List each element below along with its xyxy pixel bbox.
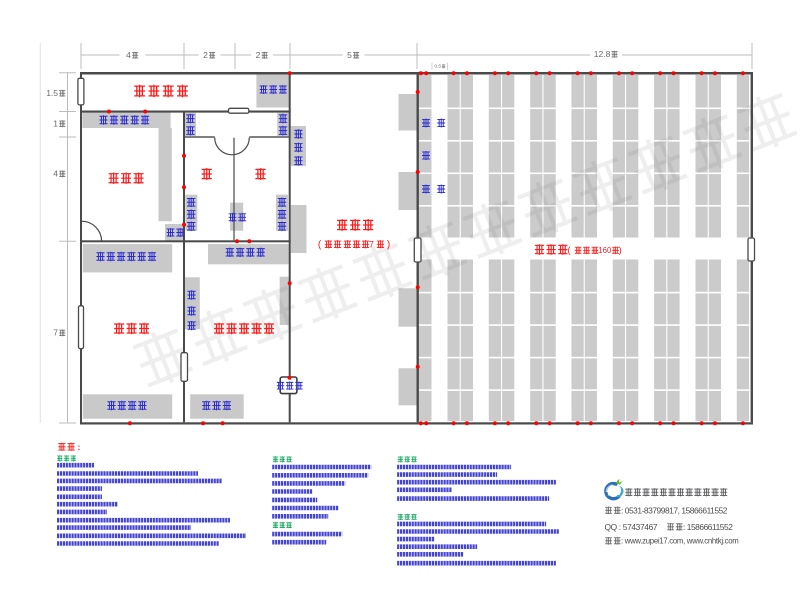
svg-text:12.8: 12.8 (594, 49, 611, 59)
svg-text:0.5: 0.5 (434, 64, 441, 70)
svg-text:): ) (387, 240, 390, 251)
svg-text:7: 7 (369, 240, 374, 250)
svg-text:160: 160 (598, 246, 612, 255)
svg-text:7: 7 (53, 328, 58, 338)
svg-text:(: ( (567, 245, 570, 255)
svg-text:): ) (619, 245, 622, 255)
svg-text::: : (78, 442, 81, 452)
svg-text:4: 4 (126, 50, 131, 60)
svg-text:4: 4 (53, 169, 58, 179)
svg-text:1.5: 1.5 (46, 88, 58, 98)
svg-text:: www.zupei17.com, www.cnhtkj: : www.zupei17.com, www.cnhtkj.com (621, 537, 739, 546)
svg-text:1: 1 (53, 119, 58, 129)
svg-text:TH: TH (607, 492, 615, 498)
svg-text:QQ : 57437467: QQ : 57437467 (605, 522, 658, 532)
svg-text:: 0531-83799817, 15866611552: : 0531-83799817, 15866611552 (621, 505, 728, 515)
svg-text:5: 5 (347, 50, 352, 60)
svg-text:: 15866611552: : 15866611552 (683, 522, 733, 532)
svg-text:2: 2 (203, 50, 208, 60)
svg-text:2: 2 (256, 50, 261, 60)
